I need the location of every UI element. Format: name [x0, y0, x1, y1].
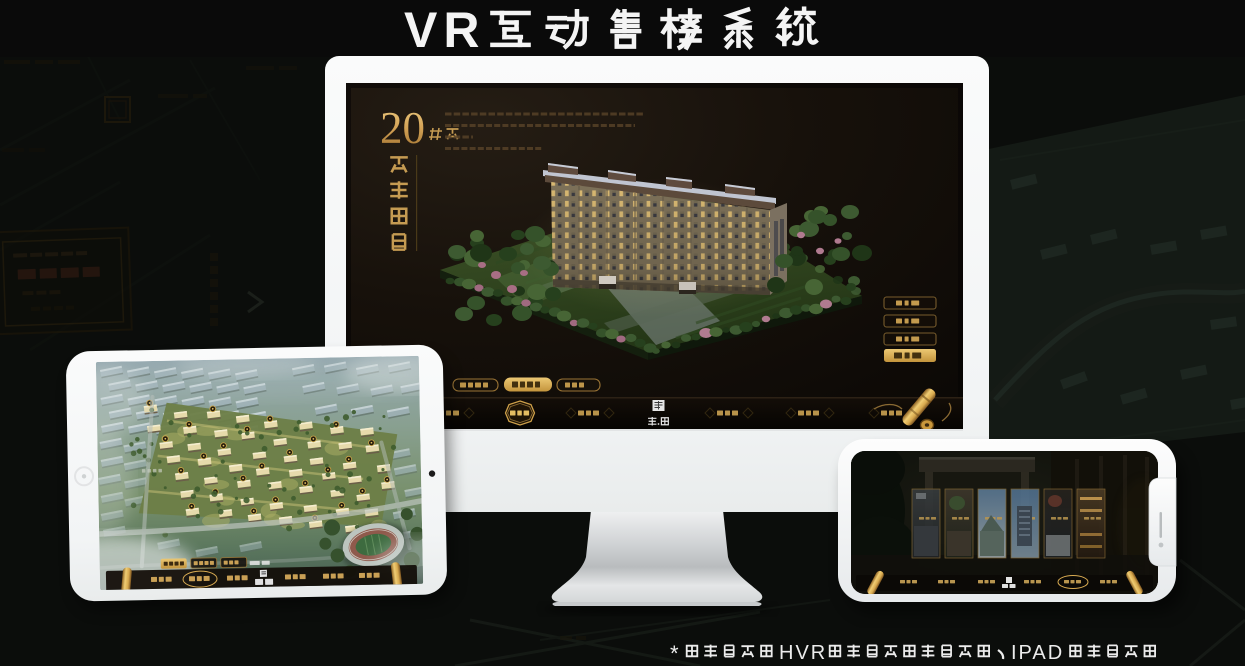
svg-text:VR: VR [404, 2, 485, 58]
svg-text:20: 20 [380, 103, 425, 153]
svg-text:IPAD: IPAD [1011, 642, 1064, 664]
svg-text:*: * [670, 641, 679, 666]
svg-text:HVR: HVR [779, 642, 827, 664]
